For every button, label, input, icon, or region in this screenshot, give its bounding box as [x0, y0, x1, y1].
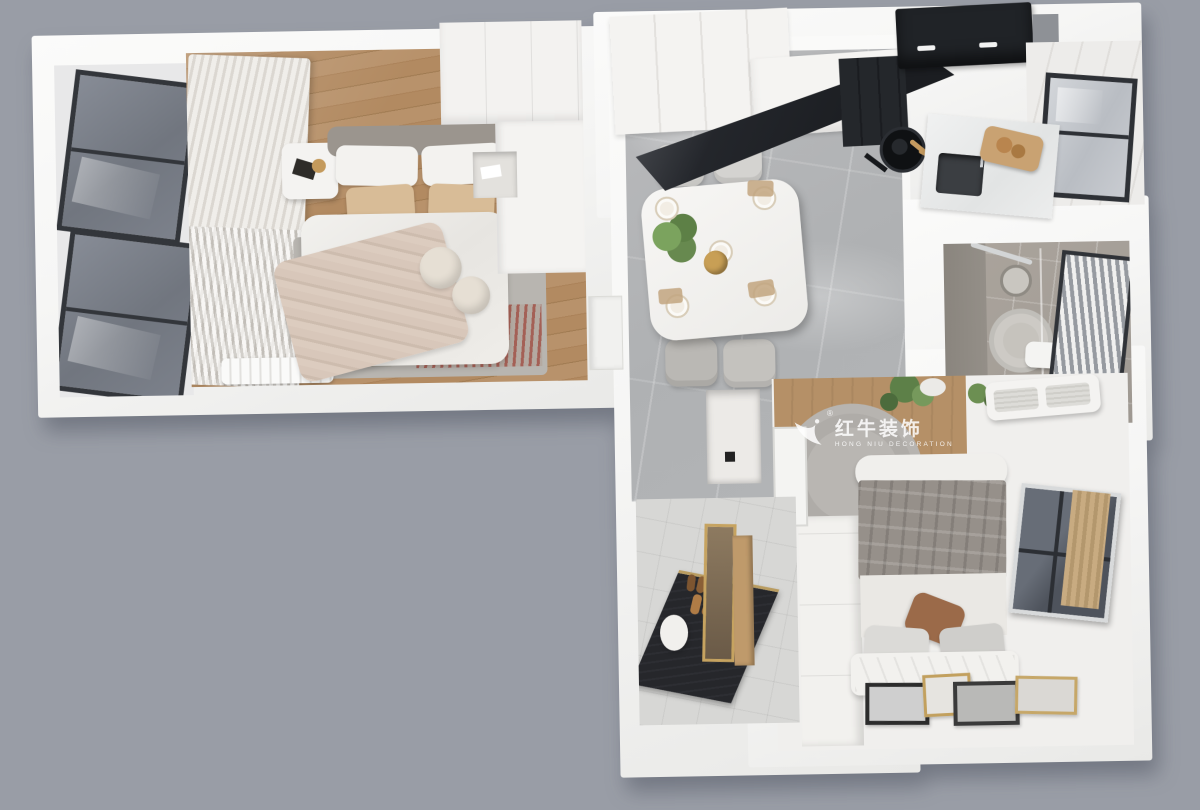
master-bedroom-door	[588, 296, 623, 371]
air-conditioner	[985, 373, 1102, 421]
dining-chair	[665, 338, 718, 387]
render-canvas: ® 红牛装饰 HONG NIU DECORATION	[0, 0, 1200, 800]
registered-mark: ®	[827, 410, 833, 418]
watermark-text: 红牛装饰 HONG NIU DECORATION	[835, 419, 954, 448]
dining-table	[639, 177, 810, 342]
table-plant	[649, 212, 705, 268]
hood-handle	[917, 45, 935, 51]
bull-logo-icon	[791, 415, 827, 451]
brand-name-chinese: 红牛装饰	[835, 419, 954, 439]
picture-frame	[1015, 676, 1078, 715]
wood-cabinet-panel	[732, 535, 754, 665]
dining-chair	[723, 339, 776, 388]
white-pillow	[336, 145, 419, 186]
apartment-floor-plan	[0, 0, 1200, 810]
master-wardrobe	[439, 20, 583, 124]
shower-head	[1000, 264, 1033, 297]
placemat	[658, 288, 683, 305]
placemat	[747, 180, 773, 196]
watermark: ® 红牛装饰 HONG NIU DECORATION	[791, 408, 961, 458]
balcony-window-lower	[54, 229, 194, 398]
leaning-mirror	[702, 524, 736, 663]
hall-wall-niche	[706, 389, 762, 484]
balcony-window-upper	[56, 69, 194, 245]
kitchen-sink	[935, 153, 984, 197]
entry-floor	[636, 497, 800, 726]
master-cabinet-niche	[473, 151, 518, 198]
picture-frame	[865, 683, 929, 725]
balcony	[54, 63, 194, 397]
second-bedroom-wardrobe	[798, 515, 864, 746]
plaid-blanket	[858, 480, 1006, 580]
bread	[1010, 143, 1027, 160]
hood-handle	[979, 42, 997, 48]
range-hood	[895, 2, 1034, 69]
brand-name-english: HONG NIU DECORATION	[835, 441, 954, 448]
second-bed	[855, 453, 1011, 696]
picture-frame	[953, 681, 1020, 726]
